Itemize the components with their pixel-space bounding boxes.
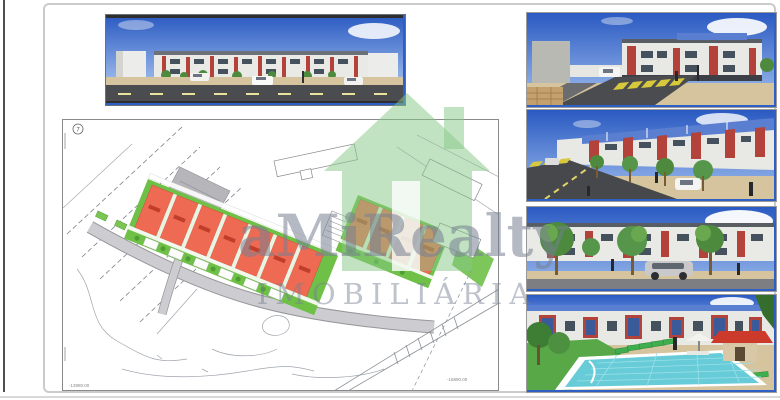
pool-area-scene (527, 295, 774, 390)
render-facade-trees (526, 206, 777, 292)
render-street-panorama (105, 14, 406, 106)
render-street-elevation (526, 109, 777, 202)
plan-coord-right: -16890.00 (447, 377, 468, 382)
document-frame: 7 -13980.00 -16890.00 (43, 3, 776, 393)
page-bottom-line (0, 396, 780, 398)
site-plan: 7 -13980.00 -16890.00 (62, 119, 499, 391)
render-street-corner (526, 12, 777, 108)
plan-coord-left: -13980.00 (69, 383, 90, 388)
panorama-scene (106, 15, 403, 103)
facade-trees-scene (527, 207, 774, 289)
site-plan-drawing: 7 -13980.00 -16890.00 (62, 119, 499, 391)
render-pool-area (526, 294, 777, 393)
page-edge-line (3, 0, 5, 392)
street-elevation-scene (527, 110, 774, 199)
street-corner-scene (527, 13, 774, 105)
